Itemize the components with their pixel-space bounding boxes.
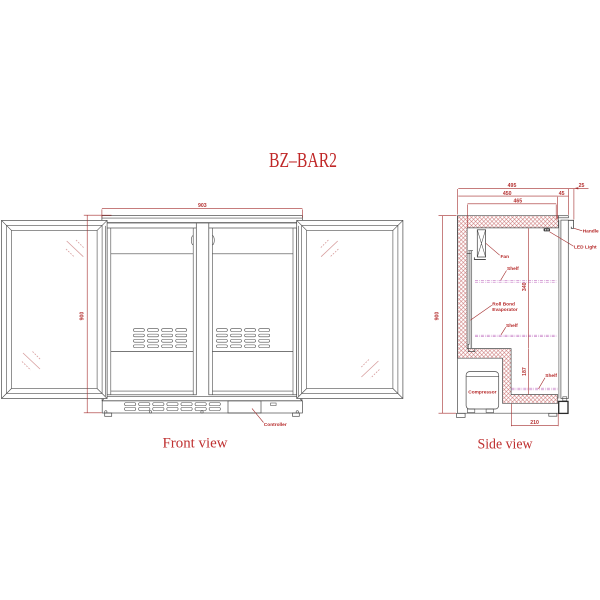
svg-text:903: 903	[198, 203, 207, 209]
svg-text:Fan: Fan	[501, 254, 510, 260]
svg-text:25: 25	[579, 183, 585, 189]
svg-text:LED Light: LED Light	[574, 245, 597, 251]
svg-text:Controller: Controller	[264, 422, 287, 428]
svg-text:187: 187	[522, 367, 528, 376]
svg-text:Handle: Handle	[583, 229, 599, 235]
svg-text:Compressor: Compressor	[468, 390, 496, 396]
svg-text:450: 450	[503, 191, 512, 197]
svg-text:210: 210	[530, 420, 539, 426]
svg-text:465: 465	[513, 199, 522, 205]
svg-text:Shelf: Shelf	[545, 373, 557, 379]
svg-text:Shelf: Shelf	[507, 266, 519, 272]
svg-text:BZ–BAR2: BZ–BAR2	[269, 148, 337, 172]
svg-text:Side view: Side view	[478, 437, 533, 453]
svg-text:900: 900	[435, 312, 441, 321]
svg-text:45: 45	[559, 191, 565, 197]
svg-text:900: 900	[80, 312, 86, 321]
svg-text:Roll Bond: Roll Bond	[492, 302, 515, 308]
svg-text:Front view: Front view	[163, 435, 228, 451]
svg-text:495: 495	[508, 183, 517, 189]
svg-text:Evaporator: Evaporator	[492, 307, 517, 313]
svg-text:Shelf: Shelf	[506, 323, 518, 329]
svg-text:340: 340	[522, 282, 528, 291]
